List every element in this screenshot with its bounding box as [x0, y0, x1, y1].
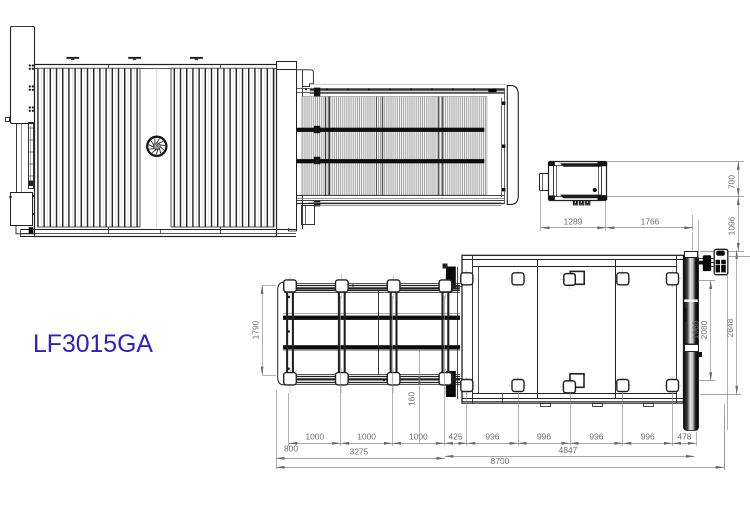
svg-text:425: 425 [449, 431, 463, 441]
svg-text:160: 160 [407, 392, 417, 406]
svg-text:1766: 1766 [641, 217, 660, 227]
svg-text:1000: 1000 [409, 431, 428, 441]
svg-text:8700: 8700 [491, 456, 510, 466]
svg-text:996: 996 [641, 431, 655, 441]
svg-text:1096: 1096 [727, 216, 737, 235]
svg-text:700: 700 [727, 175, 737, 189]
svg-text:3275: 3275 [350, 446, 369, 456]
svg-text:2848: 2848 [725, 318, 735, 337]
svg-text:1000: 1000 [305, 431, 324, 441]
svg-text:4847: 4847 [559, 445, 578, 455]
svg-text:1790: 1790 [251, 320, 261, 339]
svg-text:LF3015GA: LF3015GA [33, 331, 153, 358]
svg-text:1289: 1289 [564, 217, 583, 227]
svg-text:996: 996 [485, 431, 499, 441]
svg-text:1960: 1960 [690, 320, 700, 339]
svg-text:996: 996 [589, 431, 603, 441]
svg-text:1000: 1000 [357, 431, 376, 441]
svg-text:800: 800 [284, 443, 298, 453]
svg-text:2080: 2080 [699, 320, 709, 339]
svg-text:996: 996 [537, 431, 551, 441]
svg-text:478: 478 [677, 431, 691, 441]
